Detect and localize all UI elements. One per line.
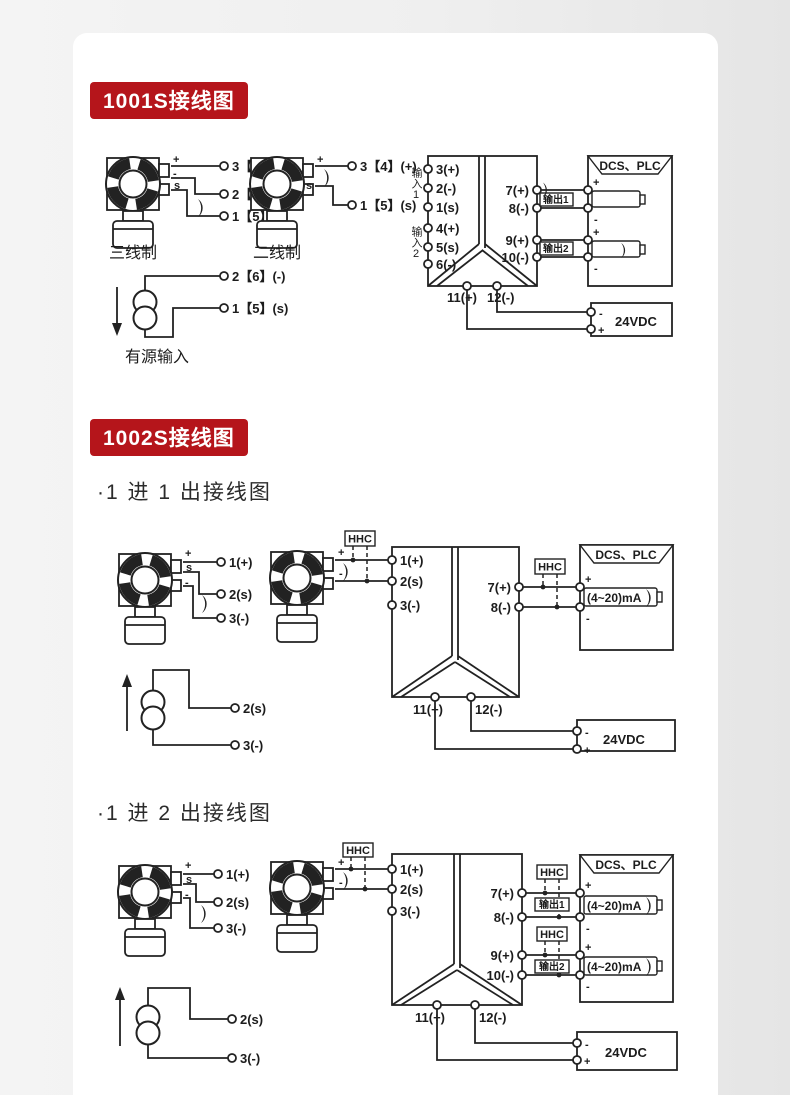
transmitter-two-wire: + - HHC (270, 531, 388, 642)
polarity-mark: + (585, 880, 591, 892)
input2-label: 输入2 (410, 225, 423, 260)
two-wire-label: 二线制 (253, 244, 301, 262)
polarity-mark: - (594, 263, 598, 275)
power-supply-box: - + 24VDC (435, 701, 675, 757)
content-card: 1001S接线图 + - (73, 33, 718, 1095)
polarity-mark: + (317, 154, 323, 166)
transmitter-two-wire: + - HHC (270, 843, 388, 952)
block-terminal: 3(+) (436, 162, 459, 177)
output-wiring: 输出1 输出2 (540, 190, 584, 257)
polarity-mark: + (593, 177, 599, 189)
output1-tag: 输出1 (543, 193, 569, 206)
polarity-mark: + (185, 860, 191, 872)
block-terminal: 6(-) (436, 257, 456, 272)
cable-crescent-icon (202, 595, 207, 613)
bottom-terminal: 11(+) (413, 702, 443, 717)
subtitle-1in2out: ·1 进 2 出接线图 (97, 797, 272, 827)
terminal-circle (220, 272, 228, 280)
polarity-mark: - (599, 308, 603, 320)
cable-crescent-icon (343, 563, 348, 581)
polarity-mark: - (585, 727, 589, 739)
polarity-mark: + (585, 574, 591, 586)
dcs-plc-box: DCS、PLC + - (4~20)mA (576, 545, 673, 650)
cable-crescent-icon (201, 905, 206, 923)
polarity-mark: s (306, 180, 312, 192)
output1-tag: 输出1 (539, 898, 565, 911)
block-terminal: 2(-) (436, 181, 456, 196)
hhc-label: HHC (538, 562, 562, 574)
block-terminal: 1(+) (400, 553, 423, 568)
polarity-mark: + (173, 154, 179, 166)
block-terminal: 10(-) (502, 250, 529, 265)
load-range-label: (4~20)mA (587, 591, 642, 605)
transmitter-two-wire: + s 3【4】(+) 1【5】(s) 二线制 (250, 154, 417, 262)
terminal-label: 2【6】(-) (232, 269, 285, 284)
power-label: 24VDC (605, 1045, 648, 1060)
polarity-mark: + (598, 325, 604, 337)
block-terminal: 9(+) (491, 948, 514, 963)
polarity-mark: - (185, 577, 189, 589)
active-input-label: 有源输入 (125, 348, 189, 366)
input1-label: 输入1 (410, 166, 423, 201)
isolator-block: 1(+) 2(s) 3(-) 7(+) 8(-) 9(+) 10(-) 11(+… (388, 854, 526, 1025)
wiring-diagram-1in1out: + s - 1(+) 2(s) 3(-) + - HHC (95, 528, 720, 773)
three-wire-label: 三线制 (109, 244, 157, 262)
polarity-mark: - (586, 981, 590, 993)
terminal-circle (348, 201, 356, 209)
block-terminal: 1(+) (400, 862, 423, 877)
polarity-mark: + (585, 942, 591, 954)
bottom-terminal: 11(+) (447, 290, 477, 305)
polarity-mark: + (185, 548, 191, 560)
terminal-circle (220, 162, 228, 170)
cable-crescent-icon (324, 169, 329, 187)
block-terminal: 2(s) (400, 882, 423, 897)
wiring-diagram-1001s: + - s 3【4】(+) 2【6】(-) 1【5】(s) 三线制 + s 3 (95, 140, 720, 372)
block-terminal: 9(+) (506, 233, 529, 248)
terminal-label: 2(s) (243, 701, 266, 716)
load-range-label: (4~20)mA (587, 960, 642, 974)
block-terminal: 7(+) (488, 580, 511, 595)
polarity-mark: - (586, 923, 590, 935)
polarity-mark: + (584, 745, 590, 757)
cable-crescent-icon (343, 872, 348, 890)
load-symbol (592, 241, 640, 257)
active-input-source: 2【6】(-) 1【5】(s) 有源输入 (112, 269, 288, 366)
dcs-plc-label: DCS、PLC (595, 858, 657, 872)
hhc-label: HHC (540, 929, 564, 941)
bottom-terminal: 12(-) (479, 1010, 506, 1025)
block-terminal: 3(-) (400, 904, 420, 919)
load-range-label: (4~20)mA (587, 899, 642, 913)
block-terminal: 1(s) (436, 200, 459, 215)
terminal-circle (348, 162, 356, 170)
polarity-mark: - (594, 214, 598, 226)
bottom-terminal: 11(+) (415, 1010, 445, 1025)
polarity-mark: - (586, 613, 590, 625)
hhc-label: HHC (348, 534, 372, 546)
block-terminal: 7(+) (506, 183, 529, 198)
current-source: 2(s) 3(-) (115, 987, 263, 1066)
block-terminal: 8(-) (491, 600, 511, 615)
block-terminal: 8(-) (509, 201, 529, 216)
block-terminal: 8(-) (494, 910, 514, 925)
polarity-mark: - (339, 568, 343, 580)
hhc-label: HHC (346, 845, 370, 857)
block-terminal: 7(+) (491, 886, 514, 901)
terminal-label: 1(+) (229, 555, 252, 570)
terminal-label: 2(s) (229, 587, 252, 602)
wiring-diagram-1in2out: + s - 1(+) 2(s) 3(-) + - HHC (95, 843, 720, 1095)
section-badge-1001s: 1001S接线图 (90, 82, 248, 119)
block-terminal: 4(+) (436, 221, 459, 236)
subtitle-1in1out: ·1 进 1 出接线图 (97, 476, 272, 506)
block-terminal: 5(s) (436, 240, 459, 255)
arrow-up-icon (122, 674, 132, 687)
terminal-label: 3(-) (243, 738, 263, 753)
section-badge-1002s: 1002S接线图 (90, 419, 248, 456)
terminal-circle (220, 190, 228, 198)
power-label: 24VDC (615, 314, 658, 329)
output2-tag: 输出2 (543, 242, 569, 255)
terminal-circle (220, 212, 228, 220)
dcs-plc-box: DCS、PLC + - + - (543, 156, 672, 286)
polarity-mark: - (585, 1039, 589, 1051)
bottom-terminal: 12(-) (475, 702, 502, 717)
isolator-block: 1(+) 2(s) 3(-) 7(+) 8(-) 11(+) 12(-) (388, 547, 523, 717)
polarity-mark: - (339, 877, 343, 889)
terminal-circle (220, 304, 228, 312)
block-terminal: 10(-) (487, 968, 514, 983)
arrow-up-icon (115, 987, 125, 1000)
terminal-label: 3【4】(+) (360, 159, 417, 174)
current-source: 2(s) 3(-) (122, 670, 266, 753)
polarity-mark: + (338, 857, 344, 869)
dcs-plc-box: DCS、PLC + - (4~20)mA + - (4~20)mA (576, 855, 673, 1002)
polarity-mark: + (338, 547, 344, 559)
dcs-plc-label: DCS、PLC (599, 159, 661, 173)
terminal-label: 3(-) (229, 611, 249, 626)
bottom-terminal: 12(-) (487, 290, 514, 305)
terminal-label: 1(+) (226, 867, 249, 882)
dcs-plc-label: DCS、PLC (595, 548, 657, 562)
arrow-down-icon (112, 323, 122, 336)
output2-tag: 输出2 (539, 960, 565, 973)
polarity-mark: - (185, 889, 189, 901)
terminal-label: 2(s) (226, 895, 249, 910)
terminal-label: 2(s) (240, 1012, 263, 1027)
terminal-label: 1【5】(s) (360, 198, 416, 213)
power-supply-box: - + 24VDC (437, 1009, 677, 1070)
block-terminal: 3(-) (400, 598, 420, 613)
transmitter-three-wire: + s - 1(+) 2(s) 3(-) (118, 548, 252, 644)
power-supply-box: - + 24VDC (467, 290, 672, 337)
power-label: 24VDC (603, 732, 646, 747)
hhc-label: HHC (540, 867, 564, 879)
load-symbol (592, 191, 640, 207)
terminal-label: 3(-) (240, 1051, 260, 1066)
polarity-mark: + (584, 1056, 590, 1068)
block-terminal: 2(s) (400, 574, 423, 589)
output-wiring: HHC 输出1 HHC 输出2 (526, 865, 576, 977)
polarity-mark: + (593, 227, 599, 239)
output-wiring: HHC (523, 559, 576, 609)
transmitter-three-wire: + s - 1(+) 2(s) 3(-) (118, 860, 249, 956)
terminal-label: 3(-) (226, 921, 246, 936)
cable-crescent-icon (198, 199, 203, 217)
isolator-block: 输入1 输入2 3(+) 2(-) 1(s) 4(+) 5(s) 6(-) 7(… (410, 156, 541, 305)
terminal-label: 1【5】(s) (232, 301, 288, 316)
